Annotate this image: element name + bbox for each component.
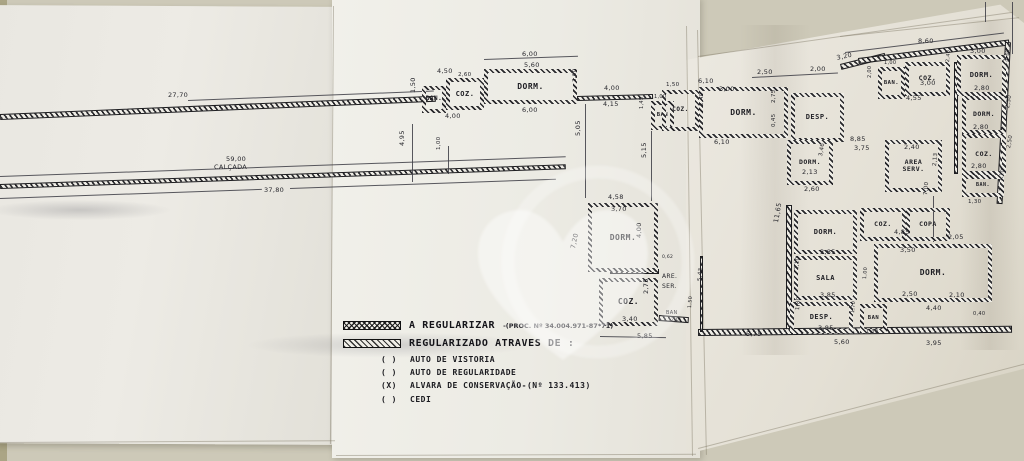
- dimension-label: CALÇADA: [214, 164, 247, 171]
- diagonal-hatch-swatch: [343, 339, 401, 348]
- dimension-label: 4,55: [906, 95, 922, 102]
- dimension-label: 7,00: [924, 182, 931, 196]
- room-label: DORM.: [920, 268, 947, 277]
- dimension-label: 4,00: [604, 85, 620, 92]
- room-label: COZ.: [456, 90, 475, 98]
- dimension-label: 5,43: [698, 268, 705, 282]
- dimension-label: 1,50: [410, 77, 417, 93]
- room-label: COZ.: [672, 107, 688, 114]
- checkbox: ( ): [381, 368, 401, 377]
- dimension-label: 2,13: [933, 153, 940, 167]
- dimension-label: 2,10: [949, 292, 965, 299]
- legend-label: A REGULARIZAR: [409, 320, 495, 331]
- dimension-label: 0,62: [662, 256, 673, 261]
- dimension-label: 2,75: [772, 90, 778, 103]
- dimension-line: [585, 104, 586, 198]
- room-ban: BAN.: [422, 86, 446, 113]
- dimension-label: 1,00: [884, 61, 896, 66]
- dimension-label: 59,00: [226, 156, 246, 163]
- dimension-label: 2,50: [1006, 95, 1014, 109]
- dimension-label: 6,00: [522, 107, 538, 114]
- legend-row-a-regularizar: A REGULARIZAR -(PROC. Nº 34.004.971-87*7…: [343, 320, 613, 331]
- dimension-label: 0,40: [973, 312, 985, 317]
- room-label: COZ.: [975, 151, 993, 158]
- dimension-label: 37,80: [264, 187, 284, 194]
- dimension-label: 5,75: [746, 331, 762, 338]
- dimension-label: 6,00: [522, 51, 538, 58]
- scanned-floor-plan-photo: BAN.COZ.DORM.BANDORM.COZ.COZ.DORM.DESP.B…: [0, 0, 1024, 461]
- sheet-crease: [698, 363, 1024, 449]
- dimension-label: 11,65: [773, 202, 783, 223]
- dimension-label: 1,50: [666, 83, 679, 89]
- dimension-label: 3,85: [820, 292, 836, 299]
- dimension-label: 1,00: [863, 267, 869, 280]
- room-label: DORM.: [973, 111, 995, 118]
- room-label: BAN.: [884, 80, 899, 86]
- dimension-label: 0,45: [772, 114, 778, 127]
- dimension-label: 3,20: [836, 52, 853, 62]
- checklist-label: CEDI: [410, 395, 431, 404]
- dimension-label: 8,60: [918, 38, 934, 45]
- dimension-label: 2,40: [904, 144, 920, 151]
- dimension-label: 2,05: [948, 234, 964, 241]
- dimension-label: 4,85: [894, 229, 910, 236]
- dimension-label: 1,00: [654, 95, 666, 100]
- dimension-label: 2,80: [973, 124, 989, 131]
- dimension-label: 2,00: [810, 66, 826, 73]
- room-ban: BAN.: [878, 67, 905, 99]
- dimension-label: 3,75: [854, 145, 870, 152]
- checklist-label: AUTO DE REGULARIDADE: [410, 368, 516, 377]
- checklist-item-regularidade: ( ) AUTO DE REGULARIDADE: [381, 368, 516, 377]
- dimension-label: 2,50: [1007, 135, 1015, 149]
- room-label: DESP.: [806, 113, 830, 121]
- dimension-label: 5,15: [641, 142, 648, 158]
- room-copa: COPA: [906, 208, 950, 241]
- room-dorm: DORM.: [588, 203, 658, 272]
- room-label: DORM.: [517, 82, 544, 91]
- room-coz: COZ.: [446, 78, 484, 110]
- dimension-label: 2,80: [974, 85, 990, 92]
- checkbox-checked: (X): [381, 381, 401, 390]
- dimension-label: 3,50: [900, 247, 916, 254]
- checkbox: ( ): [381, 395, 401, 404]
- dimension-label: 2,13: [802, 169, 818, 176]
- room-label: COZ.: [874, 221, 892, 228]
- dimension-label: 3,85: [818, 325, 834, 332]
- checklist-item-cedi: ( ) CEDI: [381, 395, 431, 404]
- checklist-label: AUTO DE VISTORIA: [410, 355, 495, 364]
- legend-proc-number: -(PROC. Nº 34.004.971-87*71): [503, 322, 613, 330]
- dimension-label: 1,10: [999, 169, 1006, 182]
- room-label: AREA SERV.: [902, 159, 924, 174]
- dimension-line: [651, 131, 652, 201]
- dimension-label: ARE.: [662, 274, 677, 280]
- dimension-label: 3,95: [926, 340, 942, 347]
- dimension-label: 2,80: [971, 163, 987, 170]
- checklist-label: ALVARA DE CONSERVAÇÃO-(Nº 133.413): [410, 381, 591, 390]
- room-label: SALA: [816, 274, 835, 282]
- dimension-label: 3,00: [719, 86, 735, 93]
- dimension-label: 2,40: [700, 93, 706, 106]
- dimension-label: 1,70: [851, 301, 857, 314]
- dimension-label: 2,10: [795, 257, 802, 271]
- dimension-line: [412, 124, 413, 182]
- dimension-label: 6,10: [698, 78, 714, 85]
- dimension-label: 4,58: [608, 194, 624, 201]
- dimension-label: 3,30: [1004, 49, 1012, 63]
- dimension-label: 3,70: [611, 206, 627, 213]
- room-label: DORM.: [970, 71, 994, 79]
- checkbox: ( ): [381, 355, 401, 364]
- dimension-label: 2,60: [804, 186, 820, 193]
- dimension-label: 1,45: [640, 97, 645, 109]
- dimension-label: 3,00: [920, 80, 936, 87]
- dimension-label: 4,15: [603, 101, 619, 108]
- room-label: COZ.: [618, 297, 639, 306]
- checklist-item-alvara: (X) ALVARA DE CONSERVAÇÃO-(Nº 133.413): [381, 381, 591, 390]
- dimension-label: 3,00: [970, 48, 986, 55]
- dimension-label: 3,85: [820, 249, 836, 256]
- room-label: BAN.: [976, 183, 990, 189]
- room-label: DORM.: [730, 108, 757, 117]
- dimension-label: 4,00: [445, 113, 461, 120]
- room-desp: DESP.: [791, 93, 844, 142]
- dimension-line: [290, 179, 556, 189]
- sheet-crease: [0, 440, 335, 443]
- room-label: DORM.: [814, 228, 838, 236]
- room-label: COPA: [919, 221, 937, 228]
- room-coz: COZ.: [860, 208, 906, 241]
- dimension-label: 2,00: [868, 66, 873, 78]
- dimension-line: [0, 189, 262, 199]
- room-label: DORM.: [610, 233, 637, 242]
- room-dorm: DORM.: [484, 69, 577, 104]
- dimension-label: 4,50: [437, 68, 453, 75]
- dimension-label: 2,40: [946, 50, 952, 63]
- legend-row-regularizado: REGULARIZADO ATRAVES DE :: [343, 338, 575, 349]
- dimension-label: 1,30: [968, 200, 981, 206]
- dimension-label: 4,40: [926, 305, 942, 312]
- dimension-label: 3,00: [573, 69, 579, 82]
- dimension-label: 4,95: [399, 130, 406, 146]
- dimension-label: 1,00: [437, 137, 443, 150]
- dimension-label: 5,05: [575, 120, 582, 136]
- room-dorm: DORM.: [874, 244, 992, 302]
- crosshatch-swatch: [343, 321, 401, 330]
- dimension-label: 5,60: [834, 339, 850, 346]
- dimension-line: [448, 146, 449, 174]
- dimension-label: 4,00: [636, 222, 643, 238]
- dimension-label: 1,80: [796, 297, 803, 311]
- legend-label: REGULARIZADO ATRAVES DE :: [409, 338, 575, 349]
- room-label: BAN.: [426, 96, 442, 103]
- legend: A REGULARIZAR -(PROC. Nº 34.004.971-87*7…: [336, 316, 736, 426]
- dimension-line: [1012, 2, 1013, 54]
- dimension-label: 1,30: [866, 330, 878, 335]
- dimension-label: 2,50: [757, 69, 773, 76]
- dimension-label: 1,50: [688, 296, 694, 309]
- sheet-crease: [336, 454, 696, 456]
- room-label: BAN: [868, 315, 879, 321]
- dimension-label: 2,60: [458, 73, 471, 79]
- sheet-crease: [330, 6, 334, 444]
- dimension-label: 6,10: [714, 139, 730, 146]
- checklist-item-vistoria: ( ) AUTO DE VISTORIA: [381, 355, 495, 364]
- dimension-label: 27,70: [168, 92, 188, 99]
- dimension-label: 8,85: [850, 136, 866, 143]
- dimension-label: 2,75: [643, 278, 650, 294]
- room-label: DESP.: [810, 313, 834, 321]
- dimension-label: 5,60: [524, 62, 540, 69]
- dimension-label: 2,50: [902, 291, 918, 298]
- room-label: DORM.: [799, 159, 821, 166]
- dimension-label: 7,20: [570, 233, 580, 250]
- room-coz: COZ.: [662, 90, 699, 131]
- dimension-label: SER.: [662, 284, 677, 290]
- dimension-line: [985, 2, 986, 22]
